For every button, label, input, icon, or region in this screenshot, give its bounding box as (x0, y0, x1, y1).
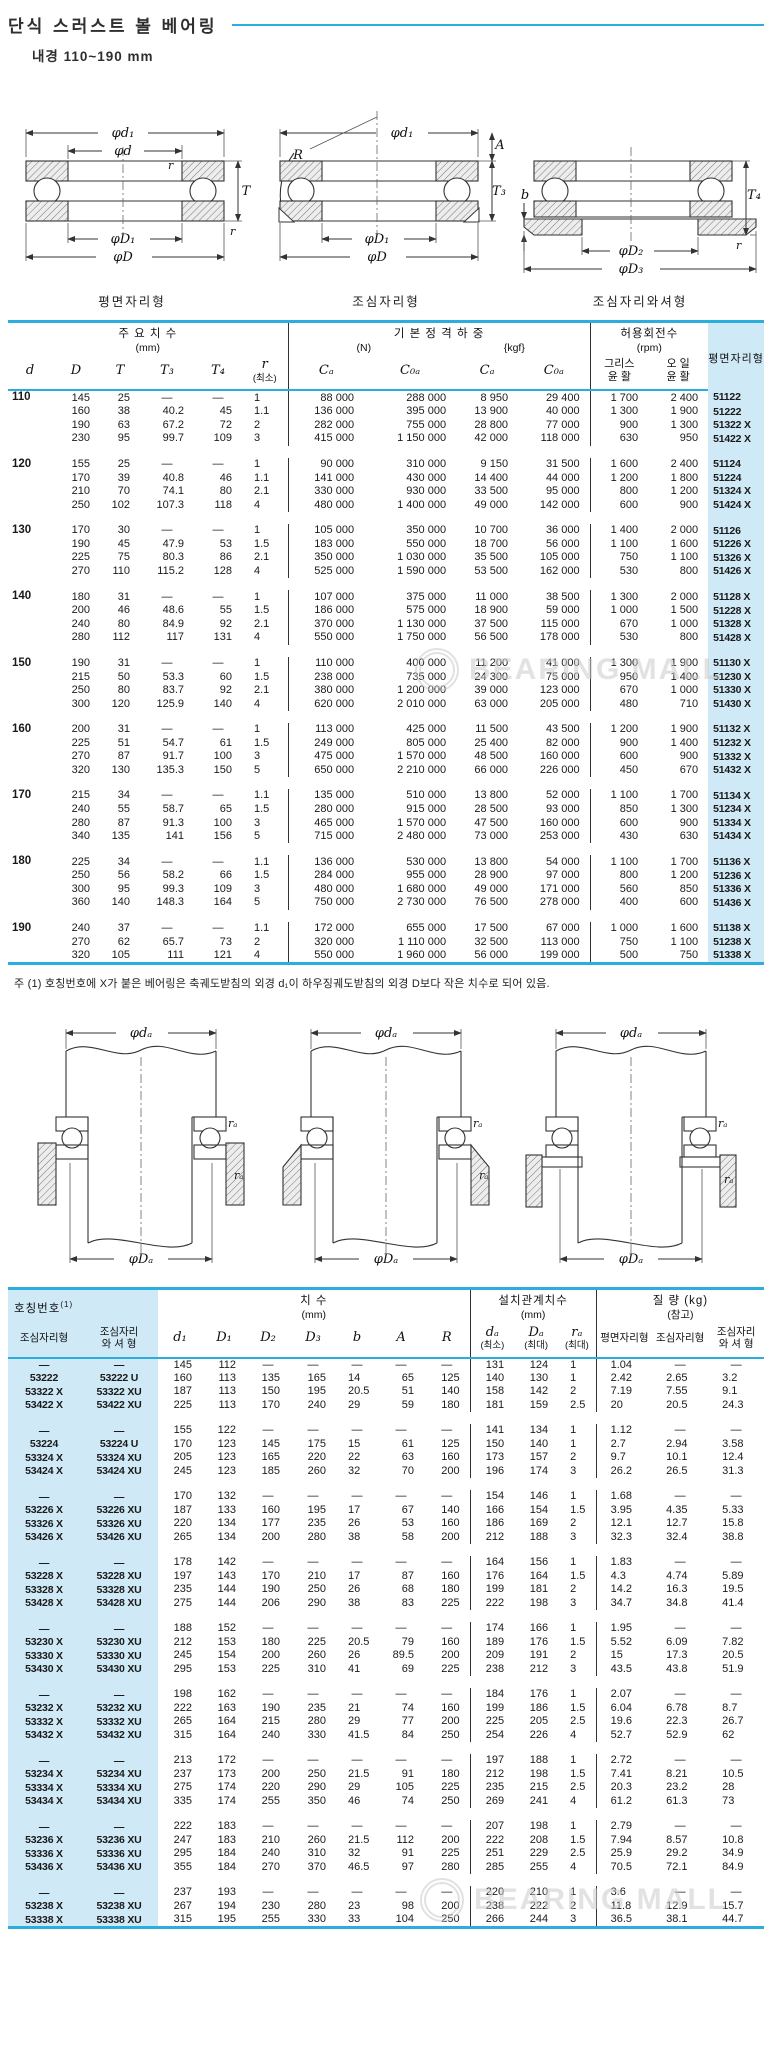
dim-label: φD₁ (365, 232, 390, 247)
figure-caption: 조심자리와셔형 (518, 291, 762, 310)
table-cell: 40 000 (518, 405, 590, 419)
table-row: 11014525——188 000288 0008 95029 4001 700… (8, 390, 764, 405)
table-cell: 650 000 (288, 764, 364, 778)
table-cell: 91.7 (140, 750, 194, 764)
col-header-T: T (100, 354, 140, 390)
table-cell: 207 (470, 1820, 514, 1834)
table-cell: 199 (470, 1583, 514, 1597)
table-cell: — (194, 590, 242, 604)
table-cell: 80 (100, 618, 140, 632)
table-cell: 28 900 (456, 869, 518, 883)
table-cell: 295 (158, 1663, 202, 1677)
table-cell: 133 (202, 1504, 246, 1518)
table-cell: 53322 X (8, 1385, 80, 1399)
table-cell: 43.8 (652, 1663, 708, 1677)
table-cell: — (708, 1820, 764, 1834)
table-cell: — (336, 1424, 378, 1438)
table-cell: 13 800 (456, 855, 518, 869)
table-cell: 25 (100, 390, 140, 405)
table-cell: 240 (52, 922, 100, 936)
table-cell: 36.5 (596, 1913, 652, 1928)
bore-diameter-cell (8, 869, 52, 883)
table-cell: 170 (158, 1490, 202, 1504)
table-cell: 2 400 (648, 458, 708, 472)
table-cell: 575 000 (364, 604, 456, 618)
table-cell: 2.1 (242, 551, 288, 565)
col-header-Coa-N: C₀ₐ (364, 354, 456, 390)
table-cell: 800 (648, 565, 708, 579)
table-row: 1603840.2451.1136 000395 00013 90040 000… (8, 405, 764, 419)
table-cell: 430 (590, 830, 648, 844)
table-cell: 51222 (708, 405, 764, 419)
table-cell: 280 000 (288, 803, 364, 817)
table-cell: 56 000 (456, 949, 518, 964)
table-cell: 160 (424, 1451, 470, 1465)
table-cell: 76 500 (456, 896, 518, 910)
page-title: 단식 스러스트 볼 베어링 (8, 12, 218, 37)
table-row: ——198162—————18417612.07—— (8, 1688, 764, 1702)
table-cell: — (708, 1688, 764, 1702)
col-header-oil: 오 일윤 활 (648, 354, 708, 390)
table-row: 2801121171314550 0001 750 00056 500178 0… (8, 631, 764, 645)
table-cell: 39 000 (456, 684, 518, 698)
table-cell: 7.55 (652, 1385, 708, 1399)
table-cell: 355 (158, 1861, 202, 1875)
table-cell: 1 (558, 1820, 596, 1834)
table-cell: 65.7 (140, 936, 194, 950)
table-row: 3009599.31093480 0001 680 00049 000171 0… (8, 883, 764, 897)
table-cell: 212 (514, 1663, 558, 1677)
table-cell: 18 900 (456, 604, 518, 618)
table-cell: 1.68 (596, 1490, 652, 1504)
table-cell: 26.5 (652, 1465, 708, 1479)
table-cell: 250 (424, 1913, 470, 1928)
table-cell: 53234 XU (80, 1768, 158, 1782)
table-cell: 1 (558, 1886, 596, 1900)
table-cell: 225 (246, 1663, 290, 1677)
figure-caption: 평면자리형 (10, 291, 254, 310)
table1-header: 주 요 치 수 (mm) 기 본 정 격 하 중 (N){kgf} 허용회전수 … (8, 322, 764, 391)
table-cell: — (8, 1820, 80, 1834)
dim-label: φD (367, 250, 387, 265)
table-cell: 53330 XU (80, 1649, 158, 1663)
table-cell: 196 (470, 1465, 514, 1479)
table-cell: 480 (590, 697, 648, 711)
table-cell: 850 (590, 803, 648, 817)
table-cell: — (652, 1556, 708, 1570)
table-cell: 113 (202, 1399, 246, 1413)
col-header-Coa-kgf: C₀ₐ (518, 354, 590, 390)
table-cell: 5.89 (708, 1570, 764, 1584)
table-cell: 900 (648, 498, 708, 512)
table-cell: — (652, 1820, 708, 1834)
table-cell: 105 (100, 949, 140, 964)
table-cell: 465 000 (288, 816, 364, 830)
table-cell: 525 000 (288, 565, 364, 579)
table-cell: 39 (100, 471, 140, 485)
table-cell: 134 (202, 1517, 246, 1531)
table-cell: 180 (424, 1399, 470, 1413)
table-row: 53434 X53434 XU3351742553504674250269241… (8, 1795, 764, 1809)
table-row: 300120125.91404620 0002 010 00063 000205… (8, 697, 764, 711)
bearing-section-figures: φd₁ φd r T r φD₁ (10, 91, 762, 310)
mounting-drawing: φdₐ rₐ rₐ φDₐ (275, 1017, 497, 1269)
table-cell: 153 (202, 1663, 246, 1677)
table-cell: 3 (242, 432, 288, 446)
table-row: 2107074.1802.1330 000930 00033 50095 000… (8, 485, 764, 499)
table-row: 53334 X53334 XU2751742202902910522523521… (8, 1781, 764, 1795)
table-cell: — (336, 1886, 378, 1900)
table-cell: — (336, 1622, 378, 1636)
table-cell: 8.57 (652, 1834, 708, 1848)
table-cell: — (140, 590, 194, 604)
table-cell: 395 000 (364, 405, 456, 419)
table-cell: 178 (158, 1556, 202, 1570)
table-cell: 280 (52, 631, 100, 645)
table-cell: — (194, 723, 242, 737)
table-cell: 210 (290, 1570, 336, 1584)
table-cell: 1 200 (590, 723, 648, 737)
table-cell: 61 (378, 1438, 424, 1452)
table-cell: 212 (470, 1768, 514, 1782)
table-cell: 5.52 (596, 1636, 652, 1650)
table-cell: 1 100 (648, 936, 708, 950)
table-cell: 164 (514, 1570, 558, 1584)
table-cell: 31 500 (518, 458, 590, 472)
dim-label: rₐ (228, 1117, 237, 1130)
table-cell: 5 (242, 764, 288, 778)
table-cell: 360 (52, 896, 100, 910)
table2-header: 호칭번호(1) 치 수 (mm) 설치관계치수 (mm) 질 량 (kg) (참… (8, 1289, 764, 1358)
table-cell: 82 000 (518, 737, 590, 751)
table-cell: 208 (514, 1834, 558, 1848)
col-header-ra: rₐ(최대) (558, 1322, 596, 1358)
table-cell: 23 (336, 1900, 378, 1914)
table-cell: 750 (590, 936, 648, 950)
table-cell: 1 800 (648, 471, 708, 485)
table-cell: 70 (378, 1465, 424, 1479)
table-row: ——145112—————13112411.04—— (8, 1358, 764, 1372)
figure-aligning-seat: φd₁ R A T₃ φD₁ (264, 91, 508, 310)
table-cell: — (80, 1754, 158, 1768)
table-cell: 330 000 (288, 485, 364, 499)
table-cell: 1 500 (648, 604, 708, 618)
table-cell: 128 (194, 565, 242, 579)
table-row: ——155122—————14113411.12—— (8, 1424, 764, 1438)
table-cell: 200 (52, 604, 100, 618)
table-cell: 282 000 (288, 419, 364, 433)
bore-diameter-cell (8, 684, 52, 698)
table-cell: 66 (194, 869, 242, 883)
table-cell: 225 (52, 737, 100, 751)
table-row: 2505658.2661.5284 000955 00028 90097 000… (8, 869, 764, 883)
table-cell: 266 (470, 1913, 514, 1928)
table-cell: — (290, 1424, 336, 1438)
table-cell: 1 (558, 1438, 596, 1452)
table-cell: — (140, 855, 194, 869)
table-cell: 112 (378, 1834, 424, 1848)
table-cell: 53224 (8, 1438, 80, 1452)
table-cell: 1 130 000 (364, 618, 456, 632)
table-cell: 83 (378, 1597, 424, 1611)
table-cell: 174 (202, 1781, 246, 1795)
table-cell: 12.9 (652, 1900, 708, 1914)
table-cell: 34.9 (708, 1847, 764, 1861)
table-cell: 210 (52, 485, 100, 499)
table-cell: 87 (100, 750, 140, 764)
table-cell: 53434 XU (80, 1795, 158, 1809)
bore-diameter-cell (8, 816, 52, 830)
table-cell: 118 (194, 498, 242, 512)
table-cell: 198 (158, 1688, 202, 1702)
table-cell: — (194, 524, 242, 538)
col-header-grease: 그리스윤 활 (590, 354, 648, 390)
table-cell: 29 (336, 1781, 378, 1795)
table-cell: — (378, 1358, 424, 1372)
table-row: 53428 X53428 XU2751442062903883225222198… (8, 1597, 764, 1611)
col-header-d: d (8, 354, 52, 390)
dim-label: rₐ (234, 1169, 243, 1182)
table-cell: 51326 X (708, 551, 764, 565)
table-cell: 51324 X (708, 485, 764, 499)
table-cell: 4.35 (652, 1504, 708, 1518)
table-cell: 8.7 (708, 1702, 764, 1716)
table-cell: — (80, 1424, 158, 1438)
table-cell: 49 000 (456, 883, 518, 897)
table-cell: 157 (514, 1451, 558, 1465)
table-cell: 199 000 (518, 949, 590, 964)
table-cell: 190 (246, 1702, 290, 1716)
table-cell: 269 (470, 1795, 514, 1809)
table-cell: 265 (158, 1531, 202, 1545)
col-header-aligning-washer: 조심자리와 셔 형 (80, 1322, 158, 1358)
bore-diameter-cell (8, 631, 52, 645)
table-cell: 53224 U (80, 1438, 158, 1452)
group-spacer (8, 645, 764, 657)
table-cell: 220 (158, 1517, 202, 1531)
table-cell: 155 (52, 458, 100, 472)
col-header-aligning-seat: 조심자리형 (8, 1322, 80, 1358)
table-cell: 91.3 (140, 816, 194, 830)
table-cell: — (424, 1886, 470, 1900)
table-cell: — (246, 1358, 290, 1372)
table-cell: 51236 X (708, 869, 764, 883)
table-cell: 61.2 (596, 1795, 652, 1809)
bore-diameter-cell: 190 (8, 922, 52, 936)
table-cell: 320 (52, 949, 100, 964)
table-cell: 141 000 (288, 471, 364, 485)
table-cell: 186 000 (288, 604, 364, 618)
table-cell: 48.6 (140, 604, 194, 618)
table-cell: 10 700 (456, 524, 518, 538)
table-cell: 110 (100, 565, 140, 579)
table-cell: 21.5 (336, 1834, 378, 1848)
group-spacer (8, 1808, 764, 1820)
table-cell: 475 000 (288, 750, 364, 764)
table-cell: 31.3 (708, 1465, 764, 1479)
table-cell: 1 (242, 390, 288, 405)
table-cell: 6.04 (596, 1702, 652, 1716)
table-cell: 181 (514, 1583, 558, 1597)
table-cell: — (8, 1622, 80, 1636)
table-cell: 1 100 (590, 855, 648, 869)
table-cell: 225 (470, 1715, 514, 1729)
table-cell: 51238 X (708, 936, 764, 950)
table-cell: 107 000 (288, 590, 364, 604)
table-cell: 41 (336, 1663, 378, 1677)
table-cell: 41 000 (518, 657, 590, 671)
table-cell: 2.7 (596, 1438, 652, 1452)
table-cell: 430 000 (364, 471, 456, 485)
table-cell: 53232 XU (80, 1702, 158, 1716)
table-cell: 113 (202, 1372, 246, 1386)
bore-diameter-cell (8, 936, 52, 950)
table-cell: 1 (558, 1358, 596, 1372)
table-cell: 29 (336, 1715, 378, 1729)
table-cell: 142 (514, 1385, 558, 1399)
table-cell: 1 000 (590, 604, 648, 618)
table-cell: — (424, 1754, 470, 1768)
group-spacer (8, 512, 764, 524)
table-cell: 80.3 (140, 551, 194, 565)
table-cell: — (290, 1622, 336, 1636)
table-row: 53424 X53424 XU2451231852603270200196174… (8, 1465, 764, 1479)
table-cell: 59 000 (518, 604, 590, 618)
table-cell: 1 030 000 (364, 551, 456, 565)
table-cell: — (246, 1490, 290, 1504)
table-cell: 53332 X (8, 1715, 80, 1729)
table-cell: 26 (336, 1583, 378, 1597)
table-cell: 52.7 (596, 1729, 652, 1743)
table-cell: 1 (558, 1754, 596, 1768)
table-cell: — (246, 1556, 290, 1570)
table-cell: 235 (470, 1781, 514, 1795)
table-cell: 1.1 (242, 855, 288, 869)
bore-diameter-cell: 170 (8, 789, 52, 803)
table-cell: 20 (596, 1399, 652, 1413)
table-cell: 250 (424, 1795, 470, 1809)
table-cell: 164 (202, 1715, 246, 1729)
table-cell: 2 730 000 (364, 896, 456, 910)
table-cell: — (708, 1424, 764, 1438)
table-cell: 156 (514, 1556, 558, 1570)
table-cell: 2 (558, 1451, 596, 1465)
table-cell: 237 (158, 1886, 202, 1900)
table-cell: 38 (336, 1597, 378, 1611)
table-cell: 51428 X (708, 631, 764, 645)
table-cell: 1 400 (648, 737, 708, 751)
table-cell: 170 (158, 1438, 202, 1452)
bore-diameter-cell: 150 (8, 657, 52, 671)
table-cell: 2.5 (558, 1781, 596, 1795)
col-header-D: D (52, 354, 100, 390)
table-cell: 8.21 (652, 1768, 708, 1782)
table-row: 53234 X53234 XU23717320025021.5911802121… (8, 1768, 764, 1782)
table-cell: 53226 XU (80, 1504, 158, 1518)
table-cell: 51338 X (708, 949, 764, 964)
table-cell: 16.3 (652, 1583, 708, 1597)
table-cell: 34 (100, 855, 140, 869)
table-cell: 28 (708, 1781, 764, 1795)
table-cell: 51.9 (708, 1663, 764, 1677)
group-spacer (8, 1676, 764, 1688)
table-cell: 255 (514, 1861, 558, 1875)
table-cell: 225 (158, 1399, 202, 1413)
table-cell: 113 (202, 1385, 246, 1399)
table-cell: 45 (194, 405, 242, 419)
table-cell: 53334 X (8, 1781, 80, 1795)
table-cell: 53426 X (8, 1531, 80, 1545)
table-cell: 53324 XU (80, 1451, 158, 1465)
table-cell: 53424 XU (80, 1465, 158, 1479)
table-cell: 170 (246, 1399, 290, 1413)
table-cell: 188 (514, 1754, 558, 1768)
table-row: ——170132—————15414611.68—— (8, 1490, 764, 1504)
table-cell: 1 100 (648, 551, 708, 565)
table-cell: 184 (470, 1688, 514, 1702)
table-row: 53436 X53436 XU35518427037046.5972802852… (8, 1861, 764, 1875)
table-cell: 53228 XU (80, 1570, 158, 1584)
table-cell: 51224 (708, 471, 764, 485)
table-cell: 4 (558, 1729, 596, 1743)
table-cell: 32.4 (652, 1531, 708, 1545)
table-cell: 136 000 (288, 405, 364, 419)
table-cell: 144 (202, 1583, 246, 1597)
table-cell: 2 210 000 (364, 764, 456, 778)
table-cell: 225 (52, 855, 100, 869)
table-cell: 750 000 (288, 896, 364, 910)
table-cell: 140 (100, 896, 140, 910)
table-cell: — (708, 1556, 764, 1570)
table-cell: 238 (470, 1900, 514, 1914)
table-cell: 163 (202, 1702, 246, 1716)
table-cell: 53236 XU (80, 1834, 158, 1848)
table-cell: — (652, 1622, 708, 1636)
table-cell: 113 000 (518, 936, 590, 950)
table-cell: 600 (590, 816, 648, 830)
dim-label: φdₐ (375, 1026, 397, 1041)
table-cell: 143 (202, 1570, 246, 1584)
table-cell: 955 000 (364, 869, 456, 883)
table-cell: 225 (290, 1636, 336, 1650)
table-cell: 3.6 (596, 1886, 652, 1900)
table-cell: 24 300 (456, 670, 518, 684)
table-cell: 1.5 (242, 604, 288, 618)
table-cell: 26 (336, 1649, 378, 1663)
table-cell: — (708, 1358, 764, 1372)
table-cell: — (8, 1688, 80, 1702)
table-cell: 41.5 (336, 1729, 378, 1743)
table-cell: 140 (514, 1438, 558, 1452)
bore-diameter-cell: 110 (8, 390, 52, 405)
dim-label: φd₁ (112, 126, 135, 141)
table-cell: 165 (246, 1451, 290, 1465)
table-row: 53336 X53336 XU2951842403103291225251229… (8, 1847, 764, 1861)
table-cell: 180 (424, 1583, 470, 1597)
table-cell: — (246, 1622, 290, 1636)
table-cell: 315 (158, 1913, 202, 1928)
table-cell: 51134 X (708, 789, 764, 803)
table-cell: 38 (336, 1531, 378, 1545)
table-cell: 1 600 (590, 458, 648, 472)
flat-seat-drawing: φd₁ φd r T r φD₁ (10, 91, 254, 283)
table-cell: 40.8 (140, 471, 194, 485)
table-cell: 46 (336, 1795, 378, 1809)
table-cell: 180 (424, 1768, 470, 1782)
table-cell: — (378, 1688, 424, 1702)
table-cell: 310 (290, 1663, 336, 1677)
table-cell: 260 (290, 1465, 336, 1479)
